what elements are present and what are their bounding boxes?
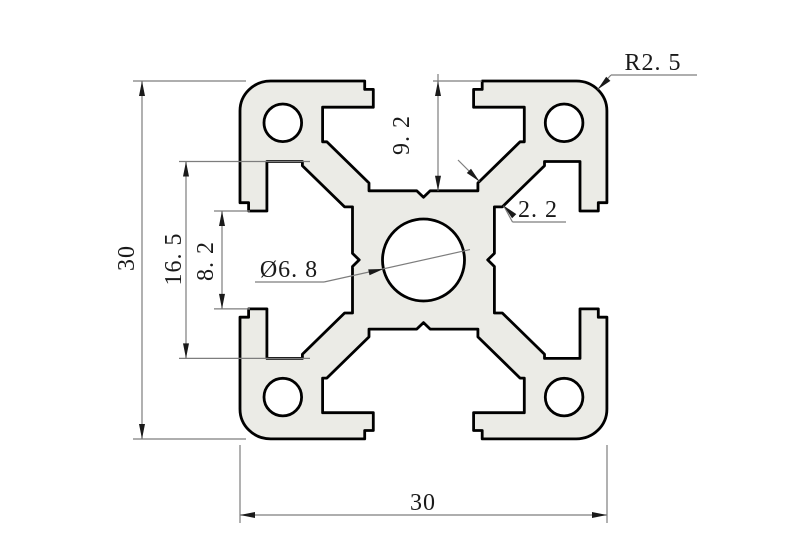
drawing-canvas: 30 16. 5 8. 2 9. 2 2. 2 [0, 0, 804, 557]
dim-label-overall-height: 30 [114, 245, 140, 271]
dim-label-slot-opening: 8. 2 [193, 241, 219, 281]
arrowhead [183, 162, 189, 177]
arrowhead [435, 176, 441, 191]
arrowhead [139, 424, 145, 439]
dim-overall-width: 30 [240, 445, 607, 523]
corner-hole-top-right [545, 104, 583, 142]
dim-label-center-hole: Ø6. 8 [260, 257, 318, 283]
arrowhead [592, 512, 607, 518]
arrowhead [219, 294, 225, 309]
dim-label-overall-width: 30 [410, 490, 436, 516]
arrowhead [183, 343, 189, 358]
dim-slot-opening: 8. 2 [193, 211, 250, 309]
arrowhead [139, 81, 145, 96]
dim-label-slot-depth: 9. 2 [389, 115, 415, 155]
arrowhead [435, 81, 441, 96]
corner-hole-top-left [264, 104, 302, 142]
dim-label-corner-radius: R2. 5 [624, 50, 681, 76]
arrowhead [240, 512, 255, 518]
arrowhead [598, 77, 611, 90]
corner-hole-bottom-right [545, 378, 583, 416]
corner-hole-bottom-left [264, 378, 302, 416]
technical-drawing: 30 16. 5 8. 2 9. 2 2. 2 [0, 0, 804, 557]
dim-label-slot-inner-width: 16. 5 [161, 233, 187, 286]
arrowhead [219, 211, 225, 226]
dim-corner-radius: R2. 5 [598, 50, 697, 89]
dim-label-web-thickness: 2. 2 [518, 197, 558, 223]
